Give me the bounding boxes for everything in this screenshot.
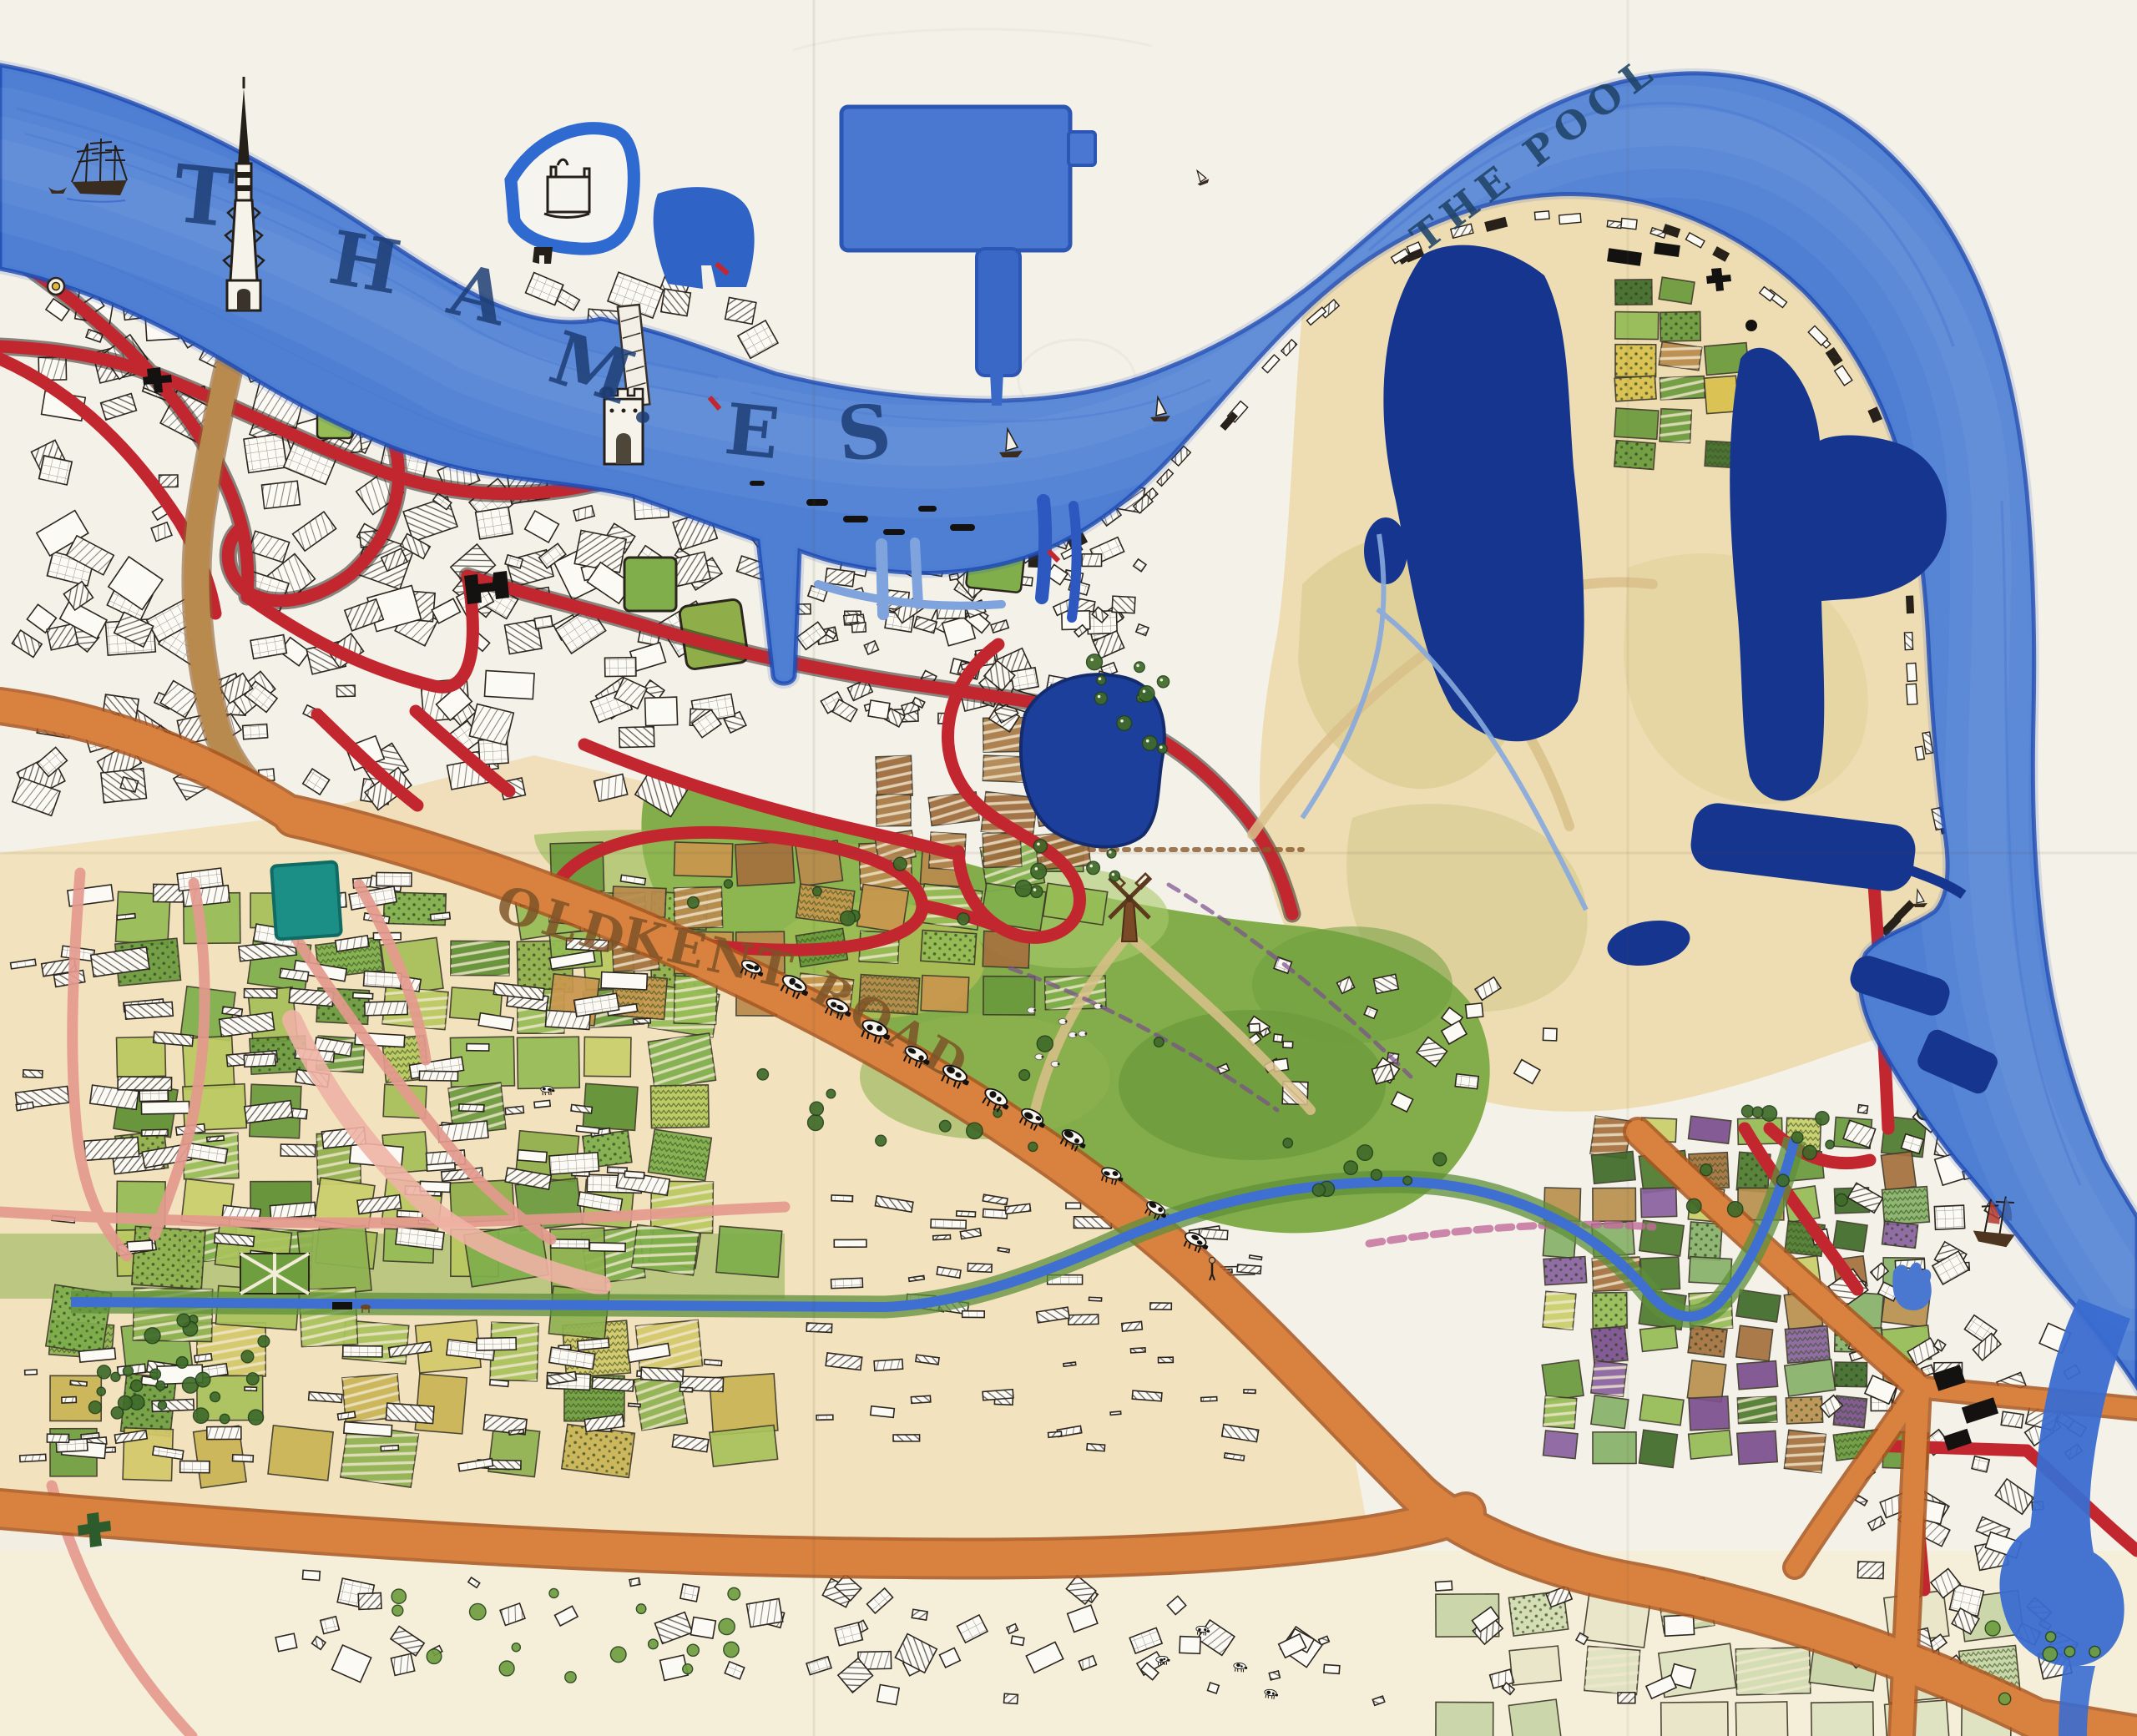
decor bbox=[549, 1588, 558, 1597]
city-block bbox=[629, 1578, 640, 1587]
field-patch bbox=[1543, 1396, 1577, 1429]
decor bbox=[177, 1314, 190, 1327]
decor bbox=[1065, 1020, 1068, 1022]
city-block bbox=[690, 1617, 715, 1639]
city-block bbox=[871, 1406, 895, 1418]
field-patch bbox=[132, 1226, 205, 1289]
decor bbox=[1120, 719, 1124, 723]
decor bbox=[1664, 1615, 1694, 1636]
decor bbox=[1245, 1667, 1247, 1669]
decor bbox=[1146, 739, 1149, 743]
decor bbox=[868, 700, 890, 719]
city-block bbox=[1011, 668, 1038, 691]
tree bbox=[565, 1672, 576, 1683]
decor bbox=[1736, 1325, 1773, 1361]
decor bbox=[735, 841, 795, 886]
decor bbox=[1142, 735, 1157, 750]
tree bbox=[1094, 692, 1107, 704]
decor bbox=[97, 1387, 105, 1395]
decor bbox=[608, 1167, 628, 1173]
decor bbox=[518, 1150, 547, 1163]
city-block bbox=[343, 1345, 382, 1357]
field-patch bbox=[1882, 1221, 1917, 1248]
decor bbox=[233, 1455, 254, 1462]
decor bbox=[1661, 1702, 1729, 1736]
city-block bbox=[505, 1106, 523, 1114]
decor bbox=[365, 1002, 407, 1016]
decor bbox=[589, 1243, 625, 1252]
wharf-building bbox=[1915, 746, 1924, 759]
decor bbox=[1857, 1562, 1883, 1579]
city-block bbox=[70, 1380, 87, 1385]
city-block bbox=[589, 1243, 625, 1252]
tree bbox=[1687, 1199, 1701, 1213]
tree bbox=[2064, 1647, 2074, 1657]
tree bbox=[826, 1089, 836, 1098]
city-block bbox=[619, 727, 654, 748]
decor bbox=[2043, 1647, 2057, 1661]
decor bbox=[1641, 1188, 1677, 1218]
decor bbox=[1543, 1291, 1576, 1330]
decor bbox=[1087, 861, 1100, 875]
city-block bbox=[1130, 1348, 1145, 1353]
decor bbox=[967, 1264, 992, 1273]
decor bbox=[244, 1054, 275, 1067]
tree bbox=[967, 1123, 983, 1138]
decor bbox=[246, 1373, 259, 1385]
decor bbox=[280, 1144, 316, 1157]
decor bbox=[1157, 676, 1169, 688]
tree bbox=[1985, 1621, 2000, 1636]
decor bbox=[392, 1605, 403, 1616]
decor bbox=[605, 658, 636, 677]
decor bbox=[1031, 863, 1047, 879]
decor bbox=[1019, 1070, 1030, 1081]
city-block bbox=[118, 1077, 172, 1091]
decor bbox=[690, 1617, 715, 1639]
wharf-building bbox=[1559, 214, 1581, 225]
city-block bbox=[1857, 1562, 1883, 1579]
decor bbox=[1593, 1432, 1636, 1464]
field-patch bbox=[1786, 1396, 1822, 1424]
decor bbox=[1907, 684, 1917, 704]
decor bbox=[545, 1092, 546, 1095]
decor bbox=[831, 1195, 853, 1202]
decor bbox=[1159, 1357, 1174, 1363]
city-block bbox=[125, 1002, 174, 1020]
tree bbox=[957, 913, 969, 925]
decor bbox=[1907, 663, 1917, 681]
field-patch bbox=[1736, 1325, 1773, 1361]
tree bbox=[220, 1414, 229, 1423]
decor bbox=[518, 1037, 580, 1088]
decor bbox=[1100, 1005, 1103, 1007]
decor bbox=[1210, 1258, 1215, 1264]
decor bbox=[857, 884, 909, 932]
tree bbox=[195, 1372, 210, 1387]
decor bbox=[1660, 409, 1691, 443]
tree bbox=[123, 1366, 133, 1376]
city-block bbox=[578, 1339, 609, 1350]
tree bbox=[176, 1357, 188, 1369]
city-block bbox=[243, 724, 268, 739]
sheep bbox=[1058, 1018, 1067, 1024]
field-patch bbox=[632, 1224, 699, 1275]
wharf-building bbox=[1907, 663, 1917, 681]
decor bbox=[1244, 1390, 1255, 1394]
city-block bbox=[261, 481, 300, 508]
tree bbox=[1816, 1112, 1829, 1125]
dock-stem bbox=[990, 372, 1003, 406]
decor bbox=[258, 1335, 270, 1347]
decor bbox=[921, 930, 977, 964]
city-block bbox=[336, 685, 355, 696]
decor bbox=[1241, 1668, 1242, 1672]
field-patch bbox=[1615, 312, 1659, 340]
decor bbox=[2046, 1632, 2056, 1642]
field-patch bbox=[1735, 1648, 1811, 1695]
city-block bbox=[1273, 1034, 1282, 1042]
city-block bbox=[509, 1429, 524, 1435]
decor bbox=[1615, 280, 1652, 305]
city-block bbox=[245, 1387, 257, 1391]
city-block bbox=[244, 989, 276, 998]
decor bbox=[1160, 679, 1164, 682]
decor bbox=[1584, 1646, 1640, 1694]
decor bbox=[194, 1408, 209, 1423]
tree bbox=[687, 1644, 699, 1656]
city-block bbox=[1087, 1444, 1105, 1451]
city-block bbox=[23, 1070, 43, 1077]
tree bbox=[1139, 686, 1154, 702]
city-block bbox=[1466, 1003, 1483, 1018]
park bbox=[624, 558, 676, 611]
city-block bbox=[275, 1633, 297, 1651]
sheep bbox=[1035, 1054, 1043, 1060]
decor bbox=[1089, 1297, 1102, 1301]
field-patch bbox=[1737, 1396, 1776, 1424]
city-block bbox=[983, 1209, 1008, 1218]
decor bbox=[1786, 1396, 1822, 1424]
field-patch bbox=[1591, 1326, 1628, 1364]
decor bbox=[1283, 1042, 1293, 1048]
field-patch bbox=[649, 1129, 712, 1180]
decor bbox=[649, 1639, 659, 1649]
decor bbox=[552, 1089, 554, 1092]
decor bbox=[1033, 1009, 1036, 1012]
decor bbox=[415, 1374, 467, 1434]
field-patch bbox=[1881, 1152, 1916, 1191]
field-patch bbox=[1591, 1360, 1627, 1396]
city-block bbox=[661, 289, 691, 315]
decor bbox=[826, 1089, 836, 1098]
tree bbox=[610, 1647, 626, 1663]
tree bbox=[1157, 676, 1169, 688]
tree bbox=[258, 1335, 270, 1347]
city-block bbox=[365, 1002, 407, 1016]
decor bbox=[1660, 311, 1701, 341]
sheep bbox=[1051, 1061, 1059, 1067]
tree bbox=[97, 1387, 105, 1395]
decor bbox=[1139, 686, 1154, 702]
decor bbox=[1271, 1696, 1272, 1699]
decor bbox=[1735, 1702, 1788, 1736]
field-patch bbox=[1436, 1702, 1493, 1736]
decor bbox=[427, 1649, 442, 1664]
wharf-building bbox=[1907, 596, 1914, 613]
field-patch bbox=[518, 1037, 580, 1088]
decor bbox=[1639, 1430, 1677, 1467]
decor bbox=[1159, 746, 1163, 749]
tree bbox=[683, 1664, 693, 1674]
field-patch bbox=[1784, 1430, 1826, 1472]
city-block bbox=[280, 1144, 316, 1157]
decor bbox=[459, 1104, 484, 1112]
city-block bbox=[1664, 1615, 1694, 1636]
city-block bbox=[1455, 1074, 1478, 1089]
decor bbox=[1136, 664, 1139, 668]
city-block bbox=[518, 1150, 547, 1163]
canal-barge bbox=[332, 1302, 352, 1310]
city-block bbox=[427, 1163, 455, 1171]
decor bbox=[23, 1070, 43, 1077]
decor bbox=[176, 1357, 188, 1369]
decor bbox=[62, 1397, 77, 1403]
decor bbox=[1466, 1003, 1483, 1018]
decor bbox=[688, 896, 700, 908]
city-block bbox=[1004, 1693, 1018, 1703]
decor bbox=[84, 1137, 139, 1160]
decor bbox=[1098, 695, 1101, 699]
city-block bbox=[159, 475, 178, 487]
city-block bbox=[634, 1018, 651, 1023]
city-block bbox=[233, 1455, 254, 1462]
decor bbox=[158, 1401, 166, 1410]
tree bbox=[549, 1588, 558, 1597]
tree bbox=[1998, 1693, 2010, 1704]
decor bbox=[1089, 865, 1093, 868]
tree bbox=[1312, 1183, 1325, 1196]
decor bbox=[1591, 1395, 1629, 1429]
sheep bbox=[1028, 1007, 1036, 1013]
tree bbox=[2043, 1647, 2057, 1661]
city-block bbox=[806, 1323, 832, 1333]
decor bbox=[1737, 1396, 1776, 1424]
decor bbox=[1791, 1132, 1803, 1143]
field-patch bbox=[562, 1425, 635, 1478]
decor bbox=[1033, 840, 1047, 853]
city-block bbox=[641, 1367, 684, 1382]
city-block bbox=[911, 1395, 930, 1403]
decor bbox=[1150, 1303, 1171, 1310]
decor bbox=[141, 1102, 189, 1114]
decor bbox=[268, 1426, 333, 1481]
decor bbox=[470, 1603, 486, 1619]
decor bbox=[1249, 1023, 1260, 1032]
decor bbox=[810, 1102, 823, 1115]
field-patch bbox=[1659, 277, 1695, 304]
decor bbox=[1312, 1183, 1325, 1196]
city-block bbox=[195, 1354, 212, 1362]
field-patch bbox=[876, 755, 912, 796]
decor bbox=[1037, 843, 1040, 846]
city-block bbox=[1112, 596, 1135, 613]
decor bbox=[1112, 596, 1135, 613]
field-patch bbox=[735, 841, 795, 886]
field-patch bbox=[1660, 311, 1701, 341]
decor bbox=[1614, 376, 1656, 401]
field-patch bbox=[1615, 345, 1656, 377]
decor bbox=[1436, 1702, 1493, 1736]
decor bbox=[1015, 881, 1032, 897]
field-patch bbox=[651, 1085, 710, 1128]
tree bbox=[1371, 1169, 1382, 1180]
tree bbox=[512, 1643, 520, 1652]
decor bbox=[47, 1434, 68, 1442]
decor bbox=[427, 1163, 455, 1171]
city-block bbox=[127, 1240, 153, 1252]
city-block bbox=[962, 1311, 985, 1318]
decor bbox=[1158, 744, 1167, 753]
decor bbox=[1591, 1326, 1628, 1364]
decor bbox=[111, 1372, 120, 1381]
decor bbox=[551, 1239, 589, 1249]
decor bbox=[876, 1135, 887, 1146]
decor bbox=[983, 1209, 1008, 1218]
field-patch bbox=[1737, 1361, 1778, 1390]
city-block bbox=[705, 1360, 722, 1365]
tree bbox=[88, 1401, 101, 1414]
city-block bbox=[844, 614, 858, 623]
decor bbox=[1090, 659, 1094, 662]
city-block bbox=[551, 1239, 589, 1249]
tree bbox=[427, 1649, 442, 1664]
decor bbox=[1700, 1164, 1712, 1176]
decor bbox=[1436, 1581, 1452, 1591]
field-patch bbox=[1584, 1646, 1640, 1694]
decor bbox=[565, 1672, 576, 1683]
decor bbox=[142, 1129, 168, 1136]
tree bbox=[1028, 1142, 1038, 1151]
decor bbox=[1082, 554, 1101, 567]
decor bbox=[477, 1338, 516, 1350]
decor bbox=[144, 1328, 160, 1344]
tree bbox=[177, 1314, 190, 1327]
decor bbox=[1826, 1140, 1834, 1148]
city-block bbox=[1063, 1362, 1076, 1366]
tree bbox=[246, 1373, 259, 1385]
decor bbox=[648, 1033, 715, 1089]
tree bbox=[150, 1369, 161, 1380]
decor bbox=[893, 857, 907, 871]
tree bbox=[1031, 863, 1047, 879]
decor bbox=[1777, 1174, 1790, 1187]
decor bbox=[1204, 1632, 1205, 1635]
decor bbox=[139, 1090, 168, 1101]
decor bbox=[1237, 1668, 1238, 1672]
tree bbox=[893, 857, 907, 871]
decor bbox=[816, 1415, 833, 1420]
decor bbox=[1099, 678, 1102, 681]
decor bbox=[876, 755, 912, 796]
tree bbox=[392, 1589, 406, 1603]
city-block bbox=[912, 1609, 927, 1620]
tree bbox=[757, 1069, 768, 1080]
city-block bbox=[1324, 1664, 1340, 1673]
decor bbox=[1737, 1361, 1778, 1390]
decor bbox=[962, 1311, 985, 1318]
decor bbox=[1934, 1205, 1964, 1229]
city-block bbox=[746, 1598, 782, 1627]
decor bbox=[1737, 1431, 1777, 1464]
spire-door bbox=[237, 289, 250, 310]
city-block bbox=[270, 1202, 316, 1219]
decor bbox=[1508, 1699, 1561, 1736]
city-block bbox=[1543, 1028, 1557, 1041]
decor bbox=[1985, 1621, 2000, 1636]
tree bbox=[1835, 1193, 1847, 1206]
decor bbox=[1689, 1430, 1732, 1459]
city-block bbox=[1048, 1431, 1062, 1437]
decor bbox=[1784, 1430, 1826, 1472]
decor bbox=[195, 1372, 210, 1387]
decor bbox=[363, 971, 401, 988]
decor bbox=[1035, 867, 1038, 871]
city-block bbox=[893, 1435, 920, 1441]
field-patch bbox=[1687, 1360, 1725, 1402]
decor bbox=[1344, 1161, 1357, 1174]
field-patch bbox=[1659, 342, 1701, 371]
decor bbox=[392, 1589, 406, 1603]
field-patch bbox=[1689, 1396, 1730, 1431]
tree bbox=[210, 1392, 220, 1402]
tree bbox=[1357, 1145, 1372, 1160]
city-block bbox=[244, 1054, 275, 1067]
field-patch bbox=[415, 1374, 467, 1434]
decor bbox=[512, 1643, 520, 1652]
decor bbox=[1109, 871, 1119, 881]
decor bbox=[275, 1633, 297, 1651]
decor bbox=[241, 1350, 254, 1363]
field-patch bbox=[1737, 1431, 1777, 1464]
city-block bbox=[376, 872, 412, 886]
field-patch bbox=[857, 884, 909, 932]
field-patch bbox=[1614, 408, 1659, 439]
decor bbox=[844, 614, 858, 623]
decor bbox=[1761, 1106, 1776, 1121]
tree bbox=[724, 880, 732, 888]
tree bbox=[118, 1395, 132, 1410]
decor bbox=[841, 911, 856, 926]
decor bbox=[131, 1380, 143, 1391]
city-block bbox=[868, 700, 890, 719]
wharf-building bbox=[1907, 684, 1917, 704]
field-patch bbox=[1542, 1360, 1584, 1400]
decor bbox=[679, 1387, 692, 1392]
decor bbox=[344, 1422, 392, 1437]
city-block bbox=[933, 1235, 951, 1240]
city-block bbox=[1180, 1637, 1200, 1654]
field-patch bbox=[1735, 1702, 1788, 1736]
decor bbox=[1915, 746, 1924, 759]
city-block bbox=[84, 1137, 139, 1160]
decor bbox=[808, 1115, 824, 1131]
decor bbox=[1543, 1396, 1577, 1429]
city-block bbox=[20, 1454, 46, 1461]
decor bbox=[1615, 312, 1659, 340]
decor bbox=[1130, 1348, 1145, 1353]
field-patch bbox=[1689, 1222, 1723, 1260]
